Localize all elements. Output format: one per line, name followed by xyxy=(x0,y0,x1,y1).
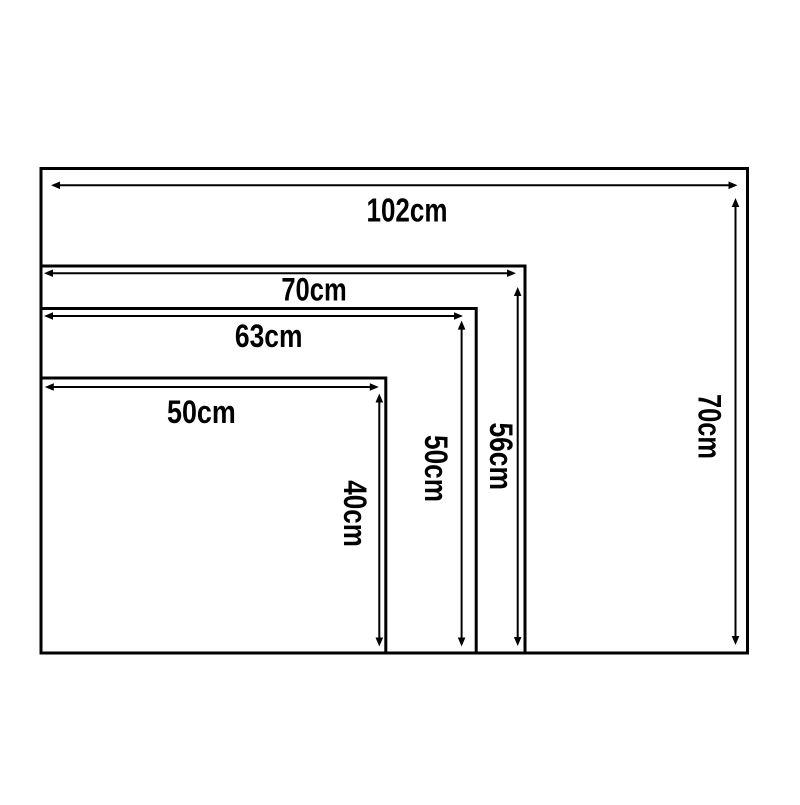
svg-text:70cm: 70cm xyxy=(692,394,728,459)
svg-text:102cm: 102cm xyxy=(367,192,448,229)
svg-text:50cm: 50cm xyxy=(167,394,236,430)
svg-text:40cm: 40cm xyxy=(337,480,373,547)
svg-text:70cm: 70cm xyxy=(281,271,346,307)
svg-text:63cm: 63cm xyxy=(235,318,303,354)
svg-text:50cm: 50cm xyxy=(418,435,454,502)
svg-text:56cm: 56cm xyxy=(483,422,519,490)
